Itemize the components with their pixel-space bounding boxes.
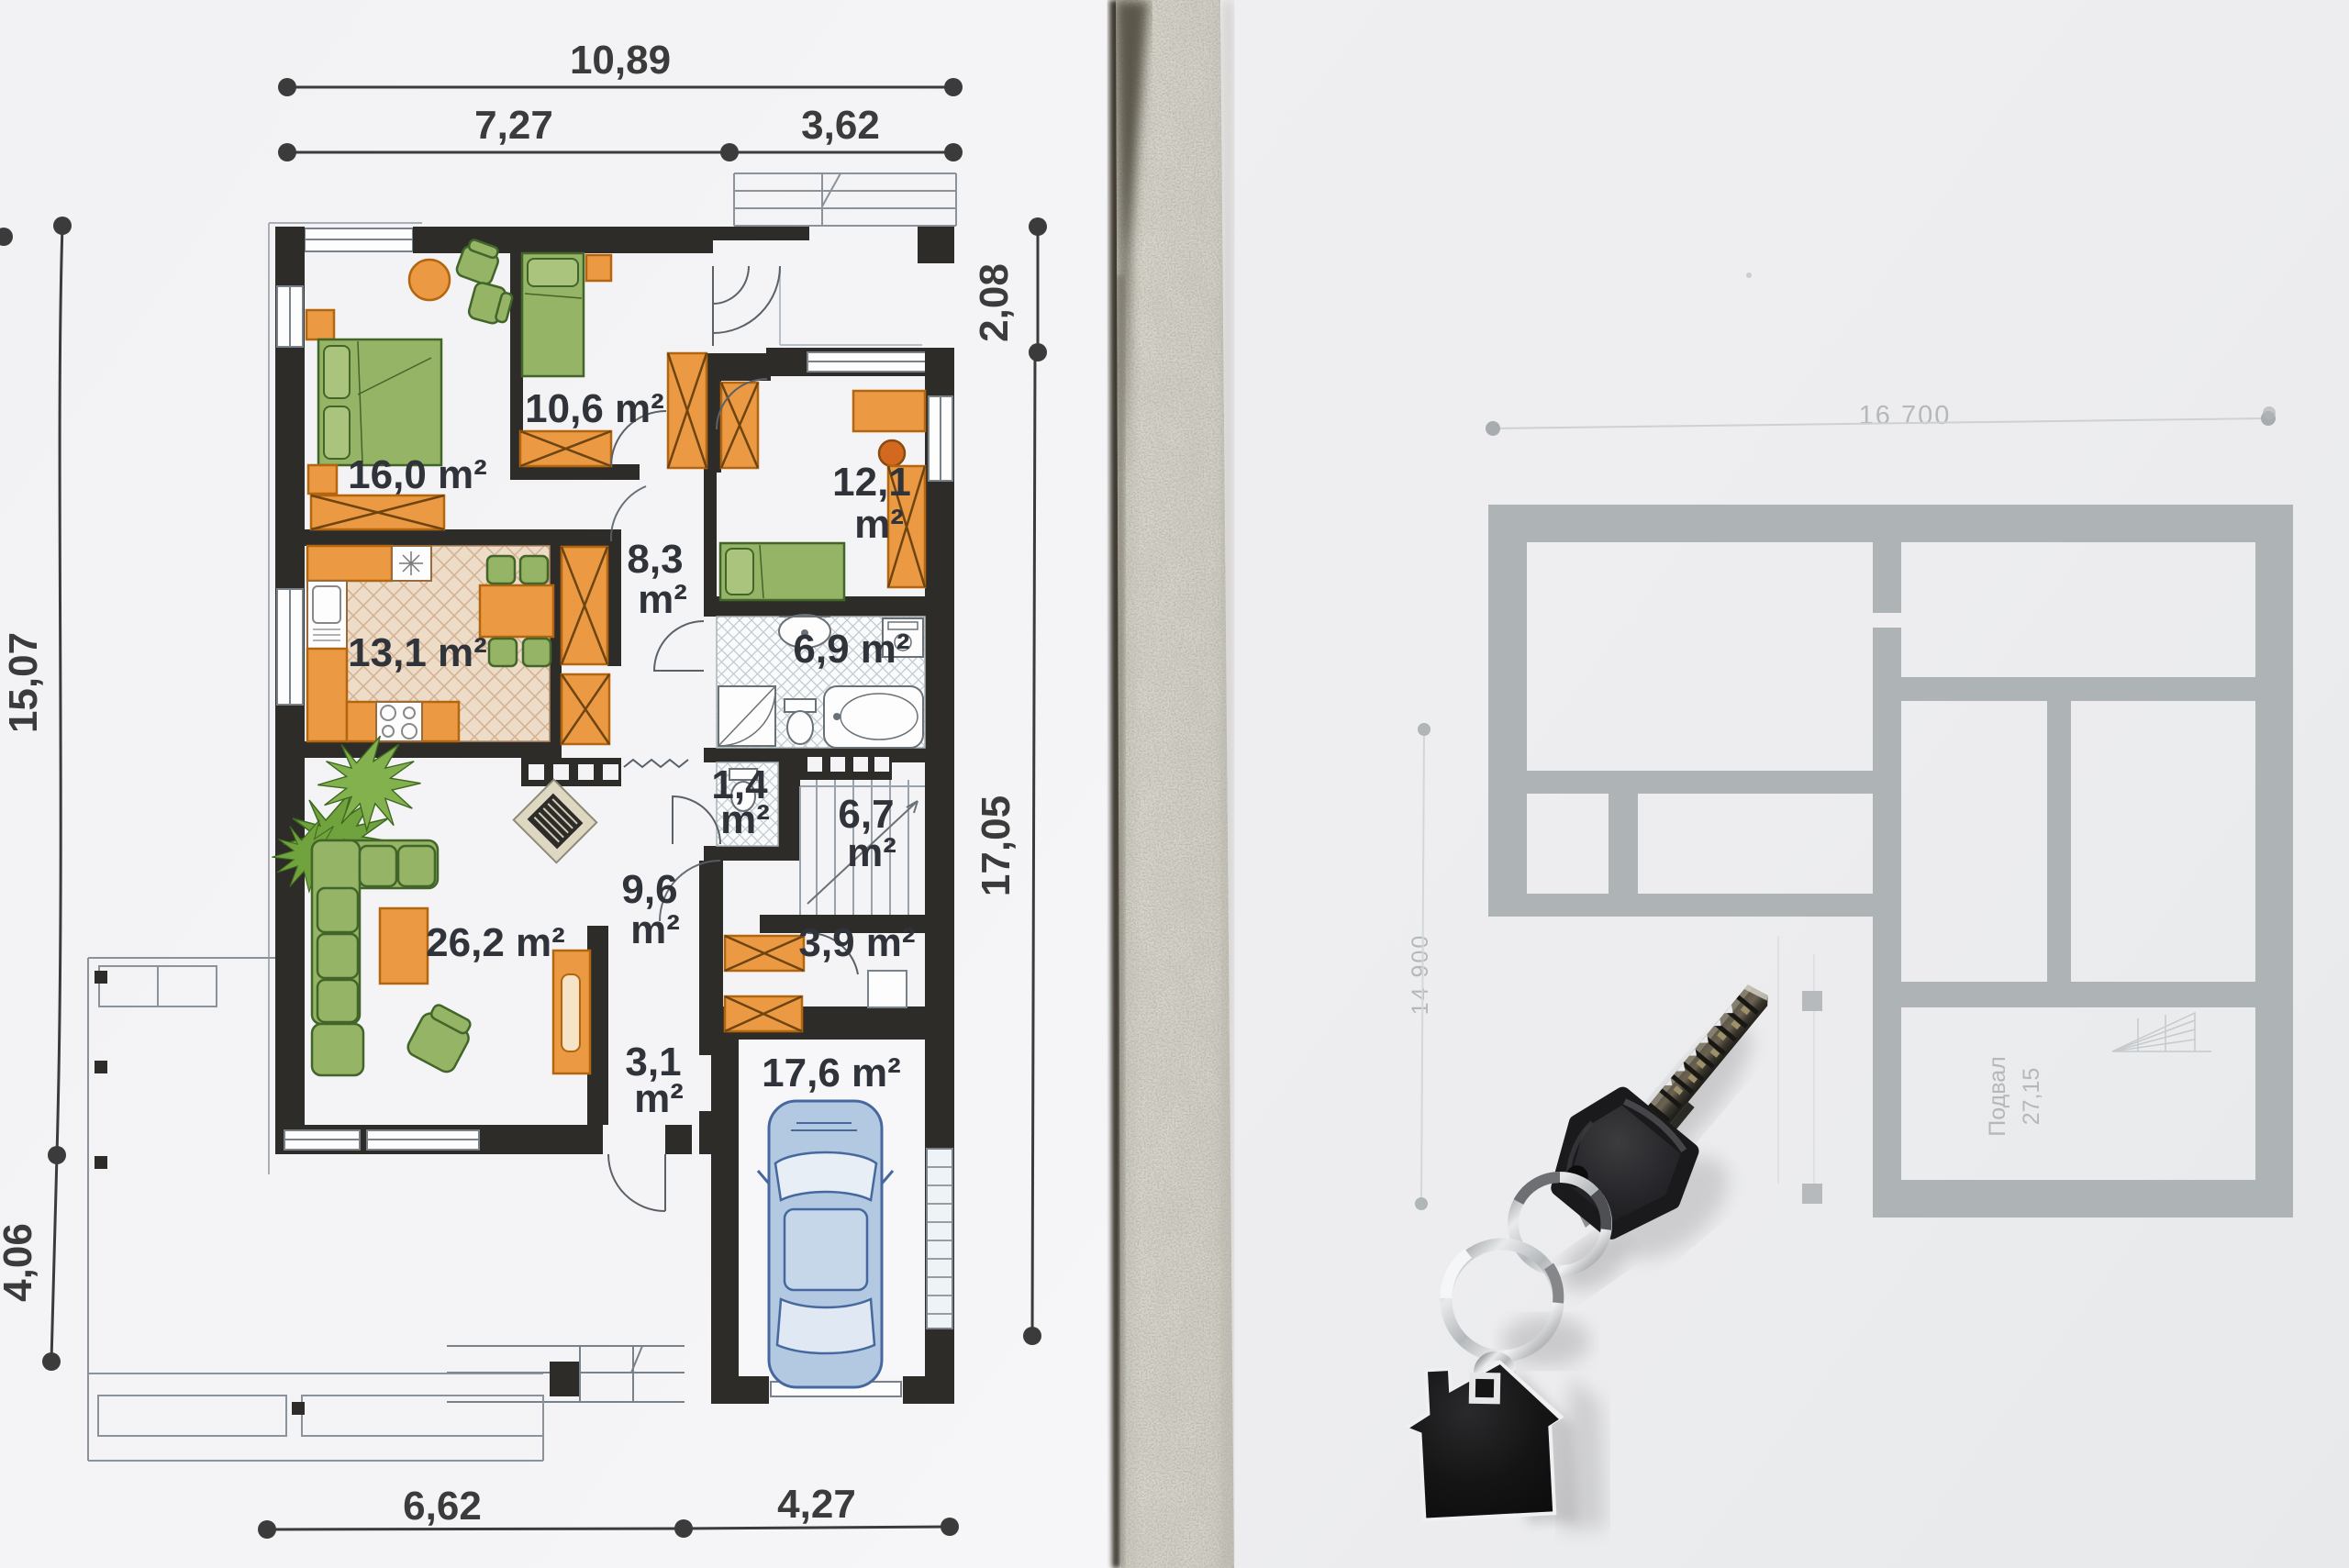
svg-text:6,9 m²: 6,9 m² (793, 627, 909, 672)
svg-text:26,2 m²: 26,2 m² (426, 920, 565, 965)
svg-text:m²: m² (720, 797, 770, 842)
svg-text:27,15: 27,15 (2019, 1068, 2044, 1126)
svg-text:m²: m² (638, 577, 687, 622)
svg-text:6,62: 6,62 (403, 1484, 482, 1529)
svg-text:9,6: 9,6 (621, 867, 677, 912)
svg-text:8,3: 8,3 (627, 537, 683, 582)
svg-text:m²: m² (634, 1076, 684, 1121)
svg-text:17,05: 17,05 (974, 795, 1019, 896)
svg-text:m²: m² (854, 502, 904, 547)
svg-text:10,89: 10,89 (570, 38, 671, 83)
svg-text:14 900: 14 900 (1408, 934, 1433, 1015)
svg-text:15,07: 15,07 (1, 632, 46, 733)
svg-text:13,1 m²: 13,1 m² (348, 630, 487, 675)
svg-text:7,27: 7,27 (474, 103, 553, 148)
svg-text:m²: m² (630, 907, 680, 952)
svg-text:Подвал: Подвал (1985, 1056, 2010, 1136)
svg-text:2,08: 2,08 (972, 263, 1017, 342)
svg-text:m²: m² (847, 830, 896, 875)
svg-text:3,62: 3,62 (801, 103, 880, 148)
svg-text:16 700: 16 700 (1859, 401, 1952, 430)
svg-text:16,0 m²: 16,0 m² (348, 452, 487, 497)
svg-text:12,1: 12,1 (832, 460, 911, 505)
svg-text:10,6 m²: 10,6 m² (525, 386, 664, 431)
svg-text:4,27: 4,27 (777, 1482, 856, 1527)
svg-text:17,6 m²: 17,6 m² (762, 1051, 901, 1095)
svg-text:3,9 m²: 3,9 m² (798, 920, 915, 965)
svg-text:4,06: 4,06 (0, 1223, 40, 1302)
